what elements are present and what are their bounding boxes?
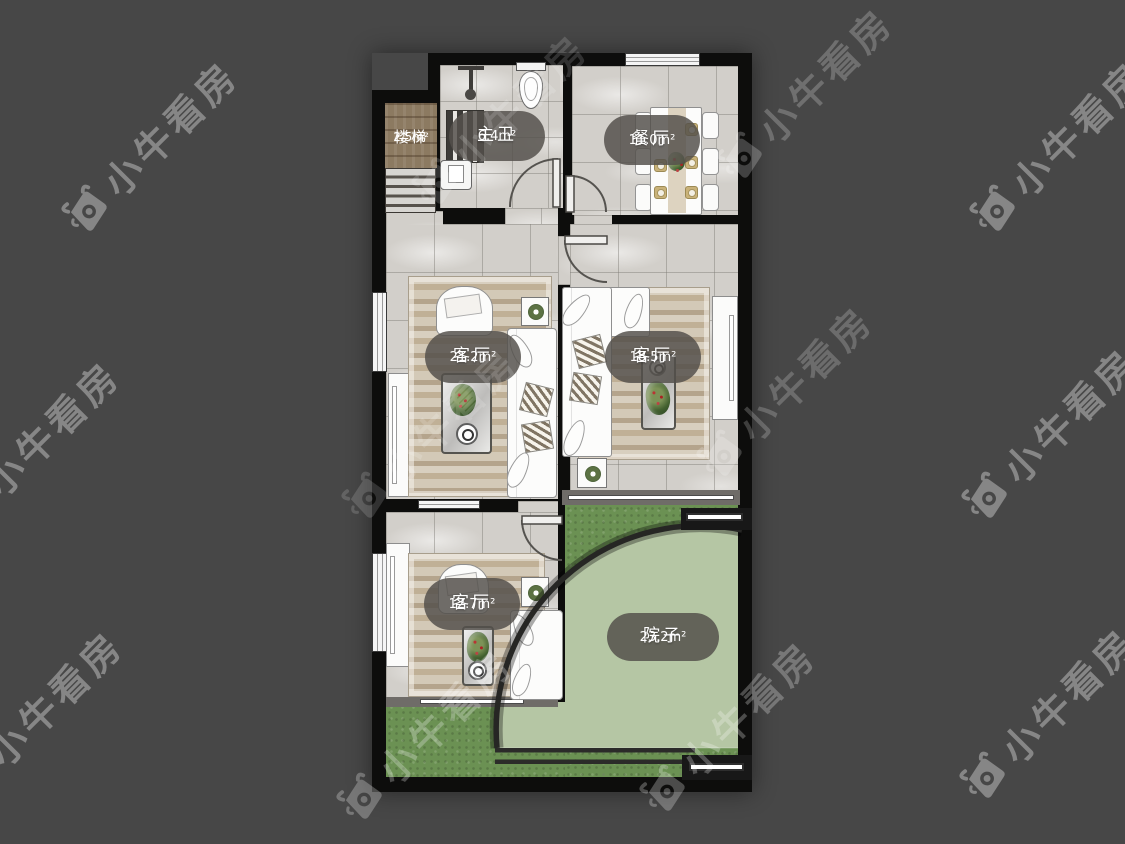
living-left-armchair	[436, 286, 493, 336]
room-area: 6.4m²	[478, 130, 517, 145]
stairs-steps	[385, 168, 436, 213]
coffee-table-tray	[468, 661, 487, 680]
watermark-text: 小牛看房	[0, 616, 134, 777]
flower-pot	[585, 466, 601, 482]
room-label-yard: 院子 23.2m²	[607, 613, 719, 661]
watermark: 小牛看房	[0, 346, 131, 546]
bottom-left-grass	[386, 702, 565, 777]
living-right-side-table	[577, 458, 607, 488]
room-area: 12.7m²	[449, 598, 496, 613]
place-setting	[685, 186, 698, 199]
dining-chair	[702, 184, 719, 211]
floor-plan: 楼梯 2.5m² 主卫 6.4m² 餐厅 11.0m² 客厅 21.2m² 客厅…	[372, 53, 752, 792]
living-bottom-side-table	[521, 577, 549, 607]
left-wall-window-mid	[372, 292, 387, 372]
place-setting	[654, 186, 667, 199]
living-left-side-table	[521, 297, 549, 326]
bull-logo-icon	[0, 748, 2, 813]
living-right-window-seat	[712, 296, 738, 420]
dining-chair	[702, 148, 719, 175]
bathroom-sink	[440, 160, 472, 190]
divider-window	[418, 500, 480, 509]
shower-pipe	[469, 66, 473, 90]
shower-head	[465, 89, 476, 100]
bull-logo-icon	[950, 745, 1015, 810]
toilet-tank	[516, 62, 546, 71]
floorplan-screenshot: 楼梯 2.5m² 主卫 6.4m² 餐厅 11.0m² 客厅 21.2m² 客厅…	[0, 0, 1125, 844]
coffee-table-tray	[456, 423, 478, 445]
dining-chair	[702, 112, 719, 139]
plan-corner-notch	[372, 53, 428, 90]
room-area: 11.0m²	[629, 134, 676, 149]
flower-pot	[528, 585, 544, 601]
watermark: 小牛看房	[0, 616, 134, 816]
room-label-bathroom: 主卫 6.4m²	[449, 111, 545, 161]
watermark-text: 小牛看房	[989, 333, 1125, 494]
room-area: 2.5m²	[393, 130, 429, 144]
window-glass	[420, 699, 524, 704]
watermark-text: 小牛看房	[0, 346, 131, 507]
living-right-yard-wall	[562, 490, 740, 505]
striped-cushion	[569, 372, 602, 405]
sliding-door-glass	[568, 495, 734, 500]
watermark-text: 小牛看房	[997, 46, 1125, 207]
bull-logo-icon	[960, 178, 1025, 243]
bull-logo-icon	[52, 178, 117, 243]
living-bottom-window-seat	[386, 543, 410, 667]
striped-cushion	[521, 420, 554, 453]
stairs-landing-floor	[386, 211, 443, 225]
room-area: 23.2m²	[640, 631, 687, 646]
bull-logo-icon	[952, 465, 1017, 530]
room-label-living-bottom: 客厅 12.7m²	[424, 578, 520, 630]
room-label-stairs: 楼梯 2.5m²	[385, 108, 437, 166]
yard-gate-top	[681, 508, 752, 530]
living-divider-door-opening	[558, 236, 570, 285]
watermark: 小牛看房	[947, 613, 1125, 813]
room-area: 18.5m²	[630, 351, 677, 366]
watermark-text: 小牛看房	[744, 0, 905, 154]
yard-gate-bottom	[682, 755, 752, 780]
room-area: 21.2m²	[450, 351, 497, 366]
flower-pot	[528, 304, 544, 320]
watermark: 小牛看房	[957, 46, 1125, 246]
watermark: 小牛看房	[49, 46, 249, 246]
watermark: 小牛看房	[949, 333, 1125, 533]
room-label-living-left: 客厅 21.2m²	[425, 331, 521, 383]
watermark-text: 小牛看房	[987, 613, 1125, 774]
watermark-text: 小牛看房	[89, 46, 250, 207]
dining-door-opening	[574, 215, 612, 224]
left-wall-window-low	[372, 553, 387, 652]
dining-top-window	[625, 53, 700, 66]
bathroom-door-opening	[505, 208, 558, 224]
room-label-living-right: 客厅 18.5m²	[605, 331, 701, 383]
room-label-dining: 餐厅 11.0m²	[604, 115, 700, 165]
living-bottom-door-opening	[518, 501, 558, 512]
